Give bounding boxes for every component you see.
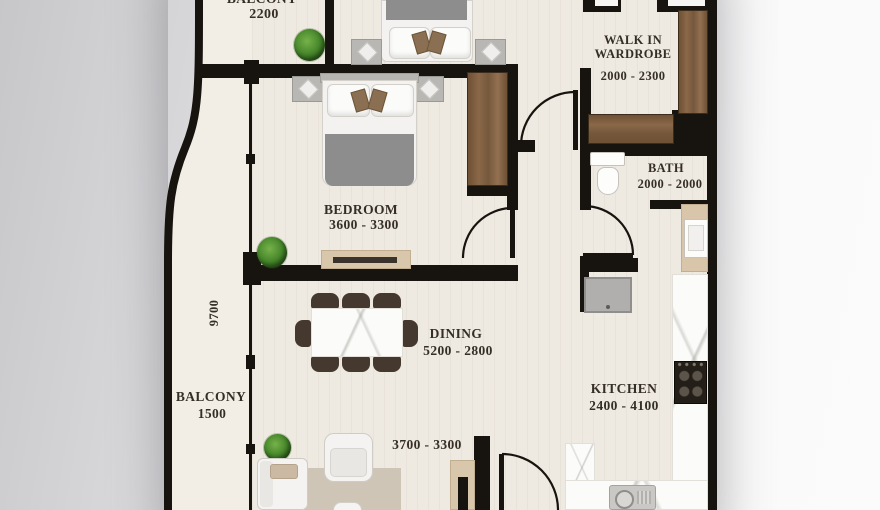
dining-chair-icon xyxy=(373,356,401,372)
nightstand-icon xyxy=(292,76,323,102)
walk-in-wardrobe-dims: 2000 - 2300 xyxy=(601,69,666,83)
balcony-side-label: BALCONY xyxy=(176,389,246,404)
toilet-icon xyxy=(597,167,619,195)
wall xyxy=(467,186,518,196)
dining-chair-icon xyxy=(311,293,339,309)
balcony-length-dim: 9700 xyxy=(207,300,221,327)
dining-chair-icon xyxy=(295,320,311,347)
wall xyxy=(474,436,490,510)
tv-icon xyxy=(333,257,397,263)
dining-chair-icon xyxy=(342,356,370,372)
closet-niche xyxy=(668,0,705,6)
nightstand-icon xyxy=(475,39,506,65)
stove-icon xyxy=(674,361,707,404)
sofa-pillow xyxy=(270,464,298,479)
wall xyxy=(580,258,638,272)
kitchen-dims: 2400 - 4100 xyxy=(589,398,659,413)
wall xyxy=(246,154,255,164)
stool-icon xyxy=(333,502,362,510)
floor-plan: BALCONY 2200 9700 BALCONY 1500 BEDROOM 3… xyxy=(0,0,880,510)
wall xyxy=(244,60,259,84)
balcony-top-dims: 2200 xyxy=(249,7,279,22)
wall xyxy=(246,355,255,369)
bow-cushion-icon xyxy=(414,31,444,53)
tv-icon xyxy=(458,477,468,510)
plant-icon xyxy=(294,29,325,61)
dining-dims: 5200 - 2800 xyxy=(423,343,493,358)
wall xyxy=(325,0,334,66)
wall xyxy=(507,140,535,152)
bow-cushion-icon xyxy=(353,89,385,112)
wall xyxy=(672,110,708,156)
closet-shelf-icon xyxy=(588,114,674,144)
dining-label: DINING xyxy=(430,326,483,341)
bed-blanket xyxy=(386,0,467,20)
plant-icon xyxy=(257,237,287,268)
living-dims: 3700 - 3300 xyxy=(392,437,462,452)
closet-shelf-icon xyxy=(678,10,708,114)
bed-blanket xyxy=(325,134,414,186)
bath-label: BATH xyxy=(648,161,684,175)
bath-sink-icon xyxy=(684,219,708,258)
dining-chair-icon xyxy=(311,356,339,372)
armchair-icon xyxy=(324,433,373,482)
fridge-icon xyxy=(584,277,632,313)
dining-chair-icon xyxy=(402,320,418,347)
bedroom-label: BEDROOM xyxy=(324,202,398,217)
bath-dims: 2000 - 2000 xyxy=(638,177,703,191)
balcony-top-label: BALCONY xyxy=(227,0,297,6)
kitchen-sink-icon xyxy=(609,485,656,510)
plant-icon xyxy=(264,434,291,461)
nightstand-icon xyxy=(351,39,382,65)
wall xyxy=(707,0,717,510)
closet-niche xyxy=(595,0,618,6)
dining-table-icon xyxy=(311,308,403,357)
dining-chair-icon xyxy=(373,293,401,309)
wardrobe-cabinet-icon xyxy=(467,72,508,186)
balcony-side-dims: 1500 xyxy=(198,406,227,421)
dining-chair-icon xyxy=(342,293,370,309)
wall xyxy=(246,444,255,454)
kitchen-label: KITCHEN xyxy=(591,381,658,396)
bedroom-dims: 3600 - 3300 xyxy=(329,217,399,232)
toilet-icon xyxy=(590,152,625,166)
walk-in-wardrobe-label: WALK IN WARDROBE xyxy=(585,33,681,61)
